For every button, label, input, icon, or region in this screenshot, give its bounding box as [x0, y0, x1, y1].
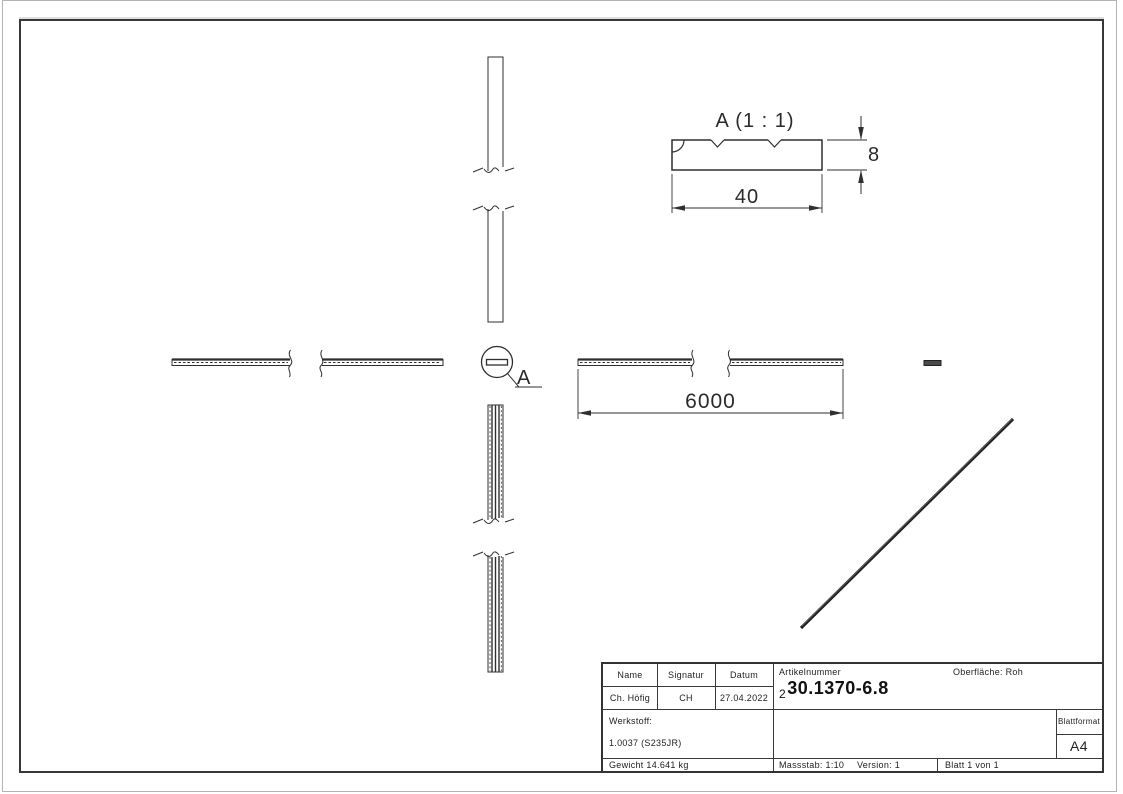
header-signatur: Signatur [657, 664, 715, 686]
value-signatur: CH [657, 686, 715, 709]
oberflaeche-text: Oberfläche: Roh [933, 666, 1043, 678]
value-datum: 27.04.2022 [715, 686, 773, 709]
artikelnummer-value: 230.1370-6.8 [779, 678, 889, 699]
header-datum: Datum [715, 664, 773, 686]
title-block-divider [603, 709, 1102, 710]
werkstoff-value: 1.0037 (S235JR) [603, 736, 773, 750]
blatt-text: Blatt 1 von 1 [937, 758, 1102, 771]
artikelnummer-number: 30.1370-6.8 [787, 678, 889, 698]
detail-view-title: A (1 : 1) [680, 110, 830, 133]
artikelnummer-prefix: 2 [779, 687, 786, 701]
dimension-40-text: 40 [672, 186, 822, 209]
drawing-border-frame [19, 19, 1104, 773]
header-name: Name [603, 664, 657, 686]
werkstoff-label: Werkstoff: [603, 714, 773, 728]
drawing-sheet: { "views": { "detail_view": { "title": "… [0, 0, 1123, 794]
dimension-6000-text: 6000 [578, 390, 843, 414]
title-block-divider [773, 664, 774, 771]
dimension-8-text: 8 [868, 144, 880, 167]
value-name: Ch. Höfig [603, 686, 657, 709]
artikelnummer-label: Artikelnummer [773, 666, 893, 678]
massstab-text: Massstab: 1:10 [773, 758, 853, 771]
gewicht-text: Gewicht 14.641 kg [603, 758, 773, 771]
blattformat-value: A4 [1056, 734, 1102, 758]
version-text: Version: 1 [851, 758, 937, 771]
blattformat-label: Blattformat [1056, 709, 1102, 734]
title-block: Name Signatur Datum Ch. Höfig CH 27.04.2… [601, 662, 1104, 773]
detail-callout-label: A [517, 367, 531, 390]
